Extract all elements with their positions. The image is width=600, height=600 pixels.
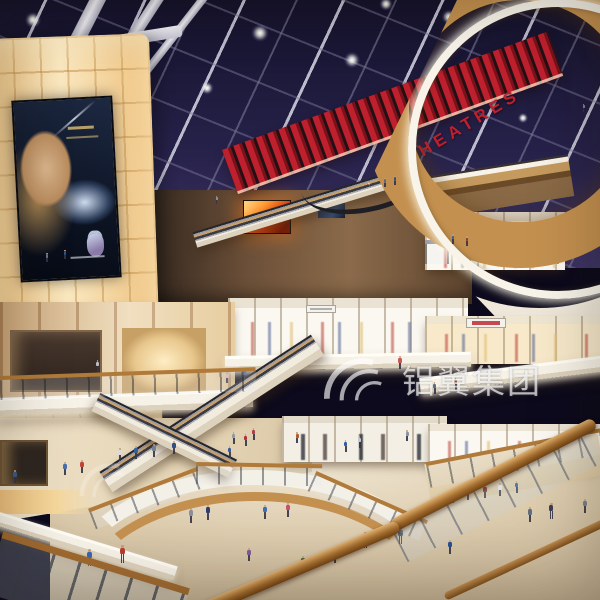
person xyxy=(447,540,453,554)
person xyxy=(62,462,68,475)
person xyxy=(243,434,248,446)
person xyxy=(295,432,300,443)
person xyxy=(119,545,127,563)
person xyxy=(451,234,455,244)
person xyxy=(357,436,362,448)
person xyxy=(188,508,194,523)
person xyxy=(205,505,211,520)
watermark-text: 铝翼集团 xyxy=(402,355,542,403)
person xyxy=(215,196,218,204)
person xyxy=(582,499,588,513)
glass-railing xyxy=(196,462,322,486)
person xyxy=(527,507,533,522)
person xyxy=(251,428,256,440)
person xyxy=(171,441,177,454)
person xyxy=(231,432,236,444)
person xyxy=(227,446,232,458)
person xyxy=(95,360,100,372)
person xyxy=(45,253,49,262)
mall-atrium-scene: THEATRES xyxy=(0,0,600,600)
watermark-logo-icon xyxy=(322,353,396,405)
person xyxy=(262,505,268,519)
watermark: 铝翼集团 xyxy=(322,352,542,406)
person xyxy=(12,470,18,483)
person xyxy=(246,548,252,561)
person xyxy=(383,178,387,187)
person xyxy=(548,503,555,519)
person xyxy=(63,250,67,259)
person xyxy=(465,236,469,246)
person xyxy=(285,503,291,517)
person xyxy=(582,104,585,112)
person xyxy=(343,440,348,452)
person xyxy=(393,176,397,185)
person xyxy=(151,444,157,457)
person xyxy=(405,430,410,441)
